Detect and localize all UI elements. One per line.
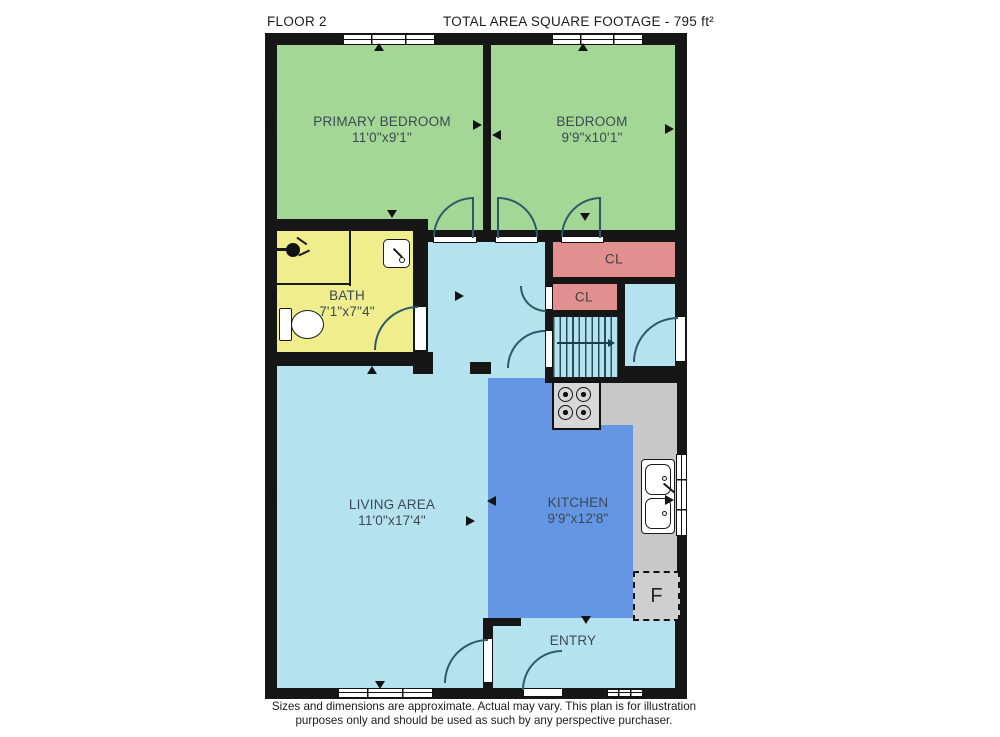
kitchen-name: KITCHEN <box>547 495 608 511</box>
disclaimer: Sizes and dimensions are approximate. Ac… <box>254 700 714 728</box>
bedroom-name: BEDROOM <box>556 114 627 130</box>
shower-partition-h <box>277 283 351 285</box>
entry-window <box>607 689 643 697</box>
dimension-arrow <box>581 616 591 624</box>
stove-burner-4 <box>576 405 591 420</box>
living-area-label: LIVING AREA 11'0"x17'4" <box>349 497 435 529</box>
stair-direction-line <box>557 342 609 344</box>
dimension-arrow <box>375 681 385 689</box>
closet-mid-door-gap <box>545 286 553 310</box>
stove-burner-1 <box>558 387 573 402</box>
kitchen-label: KITCHEN 9'9"x12'8" <box>547 495 608 527</box>
dimension-arrow <box>387 210 397 218</box>
dimension-arrow <box>487 496 496 506</box>
dimension-arrow <box>466 516 475 526</box>
living-area-name: LIVING AREA <box>349 497 435 513</box>
bath-dims: 7'1"x7"4" <box>319 304 375 320</box>
total-area-label: TOTAL AREA SQUARE FOOTAGE - 795 ft² <box>443 14 714 29</box>
bedroom-window <box>552 34 643 45</box>
dimension-arrow <box>580 213 590 221</box>
bath-name: BATH <box>319 288 375 304</box>
bath-bottom-wall <box>265 352 433 366</box>
disclaimer-line2: purposes only and should be used as such… <box>254 714 714 728</box>
closet-top-bottom-wall <box>545 277 677 284</box>
stair-direction-arrow <box>608 339 615 347</box>
kitchen-window <box>676 454 687 536</box>
stove-burner-2 <box>576 387 591 402</box>
bedroom-door-sill <box>495 236 538 243</box>
bath-label: BATH 7'1"x7"4" <box>319 288 375 320</box>
primary-bedroom-door-line <box>472 197 474 238</box>
bedroom-closet-door-line <box>599 197 601 238</box>
bath-top-wall <box>265 219 428 231</box>
floor-label: FLOOR 2 <box>267 14 327 29</box>
dimension-arrow <box>492 130 501 140</box>
closet-mid-bottom-wall <box>545 310 625 317</box>
dimension-arrow <box>473 120 482 130</box>
sink-basin-1 <box>645 464 671 495</box>
sink-drain-2 <box>662 511 667 516</box>
hall-living-stub <box>470 362 491 374</box>
sink-drain <box>399 257 405 263</box>
shower-partition-v <box>349 231 351 286</box>
entry-floor <box>493 618 675 688</box>
dimension-arrow <box>665 495 674 505</box>
entry-stub-wall <box>493 618 521 626</box>
dimension-arrow <box>266 291 275 301</box>
fridge-box: F <box>633 571 680 621</box>
sink-drain-1 <box>662 476 667 481</box>
dimension-arrow <box>455 291 464 301</box>
living-area-window <box>338 688 433 698</box>
entry-label: ENTRY <box>550 633 597 649</box>
closet-mid-label: CL <box>575 290 593 305</box>
primary-bedroom-name: PRIMARY BEDROOM <box>313 114 451 130</box>
disclaimer-line1: Sizes and dimensions are approximate. Ac… <box>254 700 714 714</box>
dimension-arrow <box>339 354 349 362</box>
bedroom-divider-wall <box>483 45 491 242</box>
stairs-door-gap <box>545 330 553 368</box>
bedroom-closet-door-sill <box>561 236 604 243</box>
dimension-arrow <box>266 494 275 504</box>
dimension-arrow <box>266 119 275 129</box>
bedroom-door-line <box>497 197 499 238</box>
stove-burner-3 <box>558 405 573 420</box>
bedroom-dims: 9'9"x10'1" <box>556 130 627 146</box>
floor-plan-page: FLOOR 2 TOTAL AREA SQUARE FOOTAGE - 795 … <box>0 0 1000 737</box>
shower-arm <box>277 248 287 251</box>
dimension-arrow <box>665 124 674 134</box>
living-area-dims: 11'0"x17'4" <box>349 513 435 529</box>
primary-bedroom-label: PRIMARY BEDROOM 11'0"x9'1" <box>313 114 451 146</box>
primary-bedroom-window <box>343 34 435 45</box>
staircase <box>553 317 618 377</box>
bath-corner-stub <box>413 352 433 374</box>
primary-bedroom-door-sill <box>433 236 477 243</box>
primary-bedroom-dims: 11'0"x9'1" <box>313 130 451 146</box>
sink-icon <box>383 239 410 268</box>
closet-top-label: CL <box>605 252 623 267</box>
dimension-arrow <box>367 366 377 374</box>
fridge-label: F <box>650 585 662 608</box>
kitchen-dims: 9'9"x12'8" <box>547 511 608 527</box>
dimension-arrow <box>578 43 588 51</box>
bedroom-label: BEDROOM 9'9"x10'1" <box>556 114 627 146</box>
dimension-arrow <box>374 43 384 51</box>
